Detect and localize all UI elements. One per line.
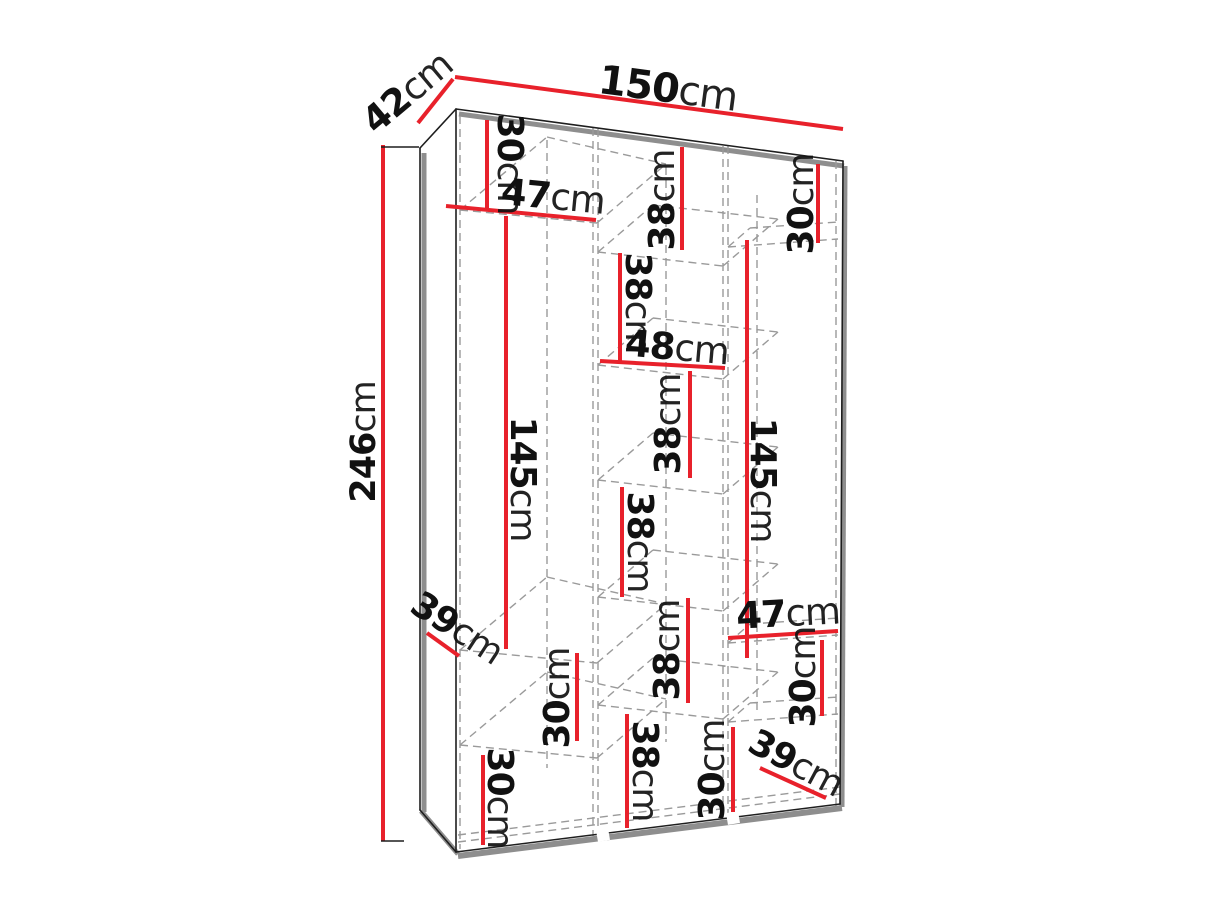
dim-label-right-top-30: 30cm: [781, 154, 822, 255]
dim-label-mid-38-5: 38cm: [647, 600, 688, 701]
dim-label-mid-38-3: 38cm: [648, 374, 689, 475]
dim-label-right-30-2: 30cm: [783, 627, 824, 728]
dim-label-mid-48: 48cm: [623, 321, 730, 373]
dim-label-right-part-30: 30cm: [692, 720, 733, 821]
wardrobe-dimension-diagram: 150cm 42cm 246cm 30cm 47cm 38cm 30cm 38c…: [0, 0, 1214, 911]
outline-bottom-left-depth-edge: [420, 810, 456, 852]
dim-label-mid-38-4: 38cm: [620, 492, 661, 593]
dim-label-height-246: 246cm: [344, 381, 384, 502]
plinth-notch-left: [597, 834, 609, 836]
dim-label-mid-38-6: 38cm: [625, 721, 666, 822]
dim-label-width-150: 150cm: [596, 57, 740, 121]
dim-label-right-145: 145cm: [743, 417, 784, 542]
diagram-canvas: 150cm 42cm 246cm 30cm 47cm 38cm 30cm 38c…: [0, 0, 1214, 911]
dim-label-left-30-2: 30cm: [537, 648, 578, 749]
dim-label-left-30-3: 30cm: [480, 748, 521, 849]
dim-label-left-145: 145cm: [503, 416, 544, 541]
dim-label-mid-top-38: 38cm: [642, 150, 683, 251]
